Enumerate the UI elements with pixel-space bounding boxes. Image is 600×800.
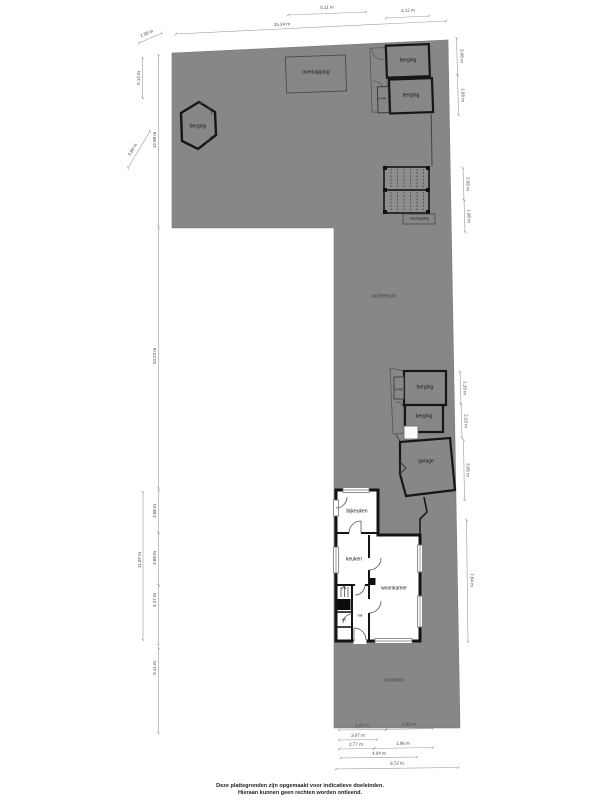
- room-label-woonkamer: woonkamer: [381, 587, 407, 592]
- area-label-achtertuin: achtertuin: [372, 295, 396, 300]
- room-label-berging-mid-2: berging: [416, 415, 433, 420]
- dimension-label: 23.23 m: [153, 348, 158, 364]
- floorplan-drawing: [0, 0, 600, 800]
- dimension-label: 1.98 m: [466, 209, 471, 223]
- dimension-label: 3.06 m: [459, 49, 464, 63]
- room-label-emk-mid: e-mk: [395, 388, 403, 392]
- dimension-label: 6.11 m: [153, 661, 158, 674]
- dimension-label: 2.65 m: [465, 177, 470, 191]
- room-label-hal: hal: [358, 614, 363, 618]
- room-label-bijkeuken: bijkeuken: [346, 510, 367, 515]
- area-label-voortuin: voortuin: [384, 679, 403, 684]
- dimension-label: 5.11 m: [320, 5, 334, 10]
- room-label-berging-top-2: berging: [403, 94, 420, 99]
- disclaimer: Deze plattegronden zijn opgemaakt voor i…: [0, 783, 600, 797]
- dimension-label: 1.20 m: [462, 381, 467, 395]
- dimension-label: 4.27 m: [153, 593, 158, 607]
- room-label-overkapping-top: overkapping: [302, 71, 329, 76]
- dimension-label: 7.84 m: [469, 573, 474, 587]
- room-label-wc: wc: [342, 618, 346, 622]
- floorplan-page: overkapping berging berging e-mk berging…: [0, 0, 600, 800]
- room-label-berging-top-1: berging: [400, 59, 417, 64]
- dimension-label: 3.12 m: [401, 8, 415, 13]
- dimension-label: 9.72 m: [390, 762, 404, 767]
- dimension-label: 2.77 m: [349, 743, 363, 748]
- dimension-label: 11.07 m: [138, 552, 143, 568]
- dimension-label: 15.24 m: [274, 22, 290, 27]
- room-label-overkapping-pergola: overkapping: [409, 217, 428, 221]
- dimension-label: 1.68 m: [460, 88, 465, 102]
- disclaimer-line-2: Hieraan kunnen geen rechten worden ontle…: [0, 790, 600, 797]
- dimension-label: 3.05 m: [465, 463, 470, 477]
- dimension-label: 3.08 m: [153, 504, 158, 518]
- dimension-label: 3.20 m: [355, 724, 369, 729]
- dimension-label: 5.12 m: [137, 71, 142, 85]
- dimension-label: 1.96 m: [396, 742, 410, 747]
- dimension-label: 3.07 m: [351, 734, 365, 739]
- dimension-label: 4.04 m: [372, 752, 386, 757]
- room-label-berging-hex: berging: [190, 125, 207, 130]
- room-label-emk-top: e-mk: [378, 97, 386, 101]
- dimension-label: 12.88 m: [153, 132, 158, 148]
- room-label-berging-mid-1: berging: [417, 386, 434, 391]
- disclaimer-line-1: Deze plattegronden zijn opgemaakt voor i…: [0, 783, 600, 790]
- dimension-label: 3.68 m: [153, 551, 158, 565]
- room-label-garage: garage: [418, 460, 434, 465]
- dimension-label: 3.65 m: [402, 723, 416, 728]
- room-label-keuken: keuken: [346, 558, 362, 563]
- building-berging-mid: [390, 368, 446, 442]
- dimension-label: 2.23 m: [463, 414, 468, 428]
